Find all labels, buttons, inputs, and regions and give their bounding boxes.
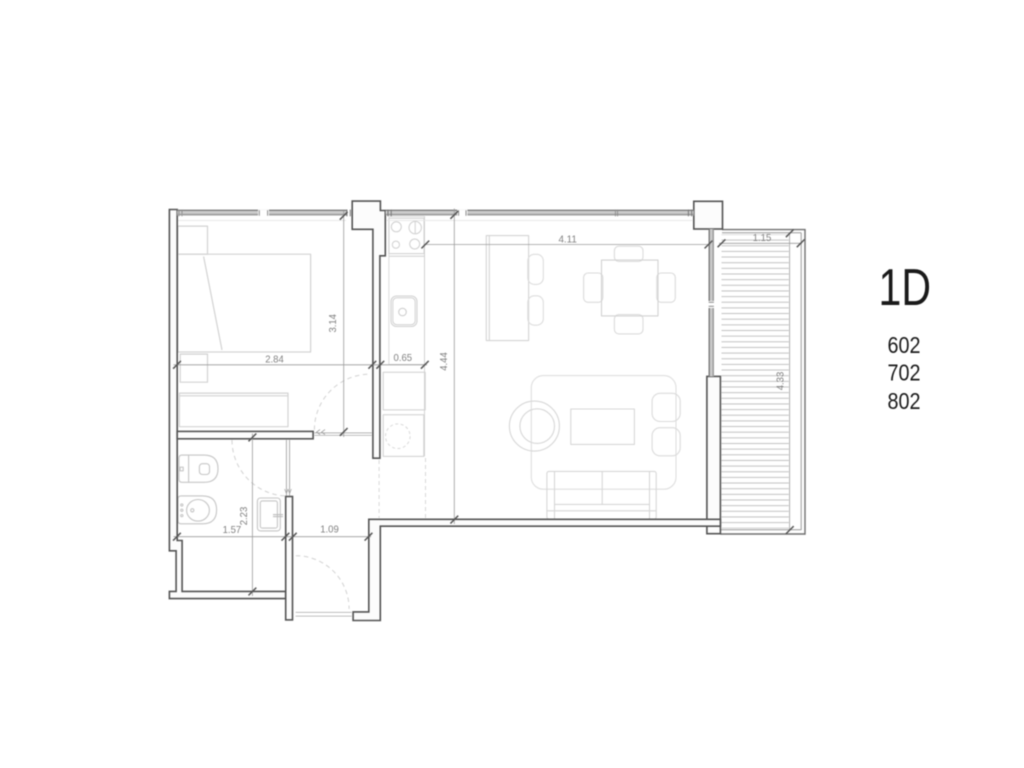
svg-text:1.15: 1.15 — [753, 232, 772, 244]
svg-text:0.65: 0.65 — [394, 352, 413, 364]
svg-text:1D: 1D — [879, 259, 932, 317]
svg-text:4.44: 4.44 — [438, 352, 450, 371]
svg-text:2.84: 2.84 — [265, 354, 284, 366]
svg-text:3.14: 3.14 — [327, 314, 339, 333]
svg-text:702: 702 — [888, 359, 921, 385]
svg-text:2.23: 2.23 — [238, 507, 250, 526]
svg-text:802: 802 — [888, 388, 921, 414]
svg-text:4.11: 4.11 — [558, 233, 577, 245]
svg-text:1.09: 1.09 — [320, 524, 339, 536]
svg-text:4.33: 4.33 — [775, 372, 787, 391]
svg-text:602: 602 — [888, 332, 921, 358]
